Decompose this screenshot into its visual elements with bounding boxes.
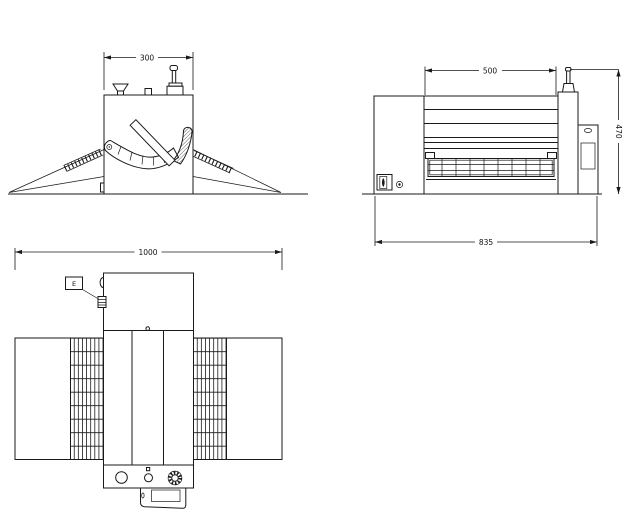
drawing-canvas: 300 <box>0 0 637 523</box>
side-box <box>578 125 598 194</box>
dim-835-value: 835 <box>479 238 494 247</box>
dim-470-value: 470 <box>614 124 623 139</box>
funnel-knob-base <box>118 91 124 95</box>
front-view: 500 470 835 <box>362 67 623 247</box>
left-conveyor-band <box>71 338 104 460</box>
right-ramp-rollers <box>196 154 232 171</box>
right-conveyor-band <box>194 338 227 460</box>
belt-pivot-dot <box>109 146 110 147</box>
middle-knob <box>145 474 153 482</box>
lever-ball <box>170 66 178 71</box>
power-switch <box>377 175 392 191</box>
lever-base <box>167 86 183 95</box>
right-ramp <box>193 150 282 193</box>
top-fittings <box>113 66 183 96</box>
plug-connector <box>98 297 106 308</box>
lever-stick <box>172 71 175 84</box>
control-lever <box>563 68 575 93</box>
central-body <box>104 273 194 465</box>
grid-tab-left <box>426 153 435 159</box>
control-panel <box>104 465 194 488</box>
left-ramp-foot <box>101 183 105 192</box>
dim-835: 835 <box>375 196 597 247</box>
large-knob <box>116 472 128 484</box>
rear-bracket <box>141 488 186 508</box>
grid-tab-right <box>548 153 557 159</box>
funnel-knob <box>113 84 128 91</box>
dim-1000: 1000 <box>15 248 282 270</box>
dim-500: 500 <box>425 67 556 96</box>
center-pin <box>146 327 150 331</box>
small-boss-top <box>147 468 150 471</box>
indicator-knob-dot <box>398 183 400 185</box>
edge-bracket <box>100 278 103 288</box>
dim-500-value: 500 <box>483 67 498 76</box>
hand-lever <box>167 66 183 96</box>
technical-drawing-page: 300 <box>0 0 637 523</box>
side-view: 300 <box>8 52 308 194</box>
left-ramp <box>9 149 104 193</box>
dim-300-value: 300 <box>140 53 155 62</box>
small-boss <box>145 89 152 96</box>
e-label-text: E <box>72 280 76 288</box>
right-column <box>558 92 578 194</box>
plan-view: 1000 E <box>15 248 282 508</box>
dim-1000-value: 1000 <box>138 248 157 257</box>
left-ramp-rollers <box>65 152 102 169</box>
